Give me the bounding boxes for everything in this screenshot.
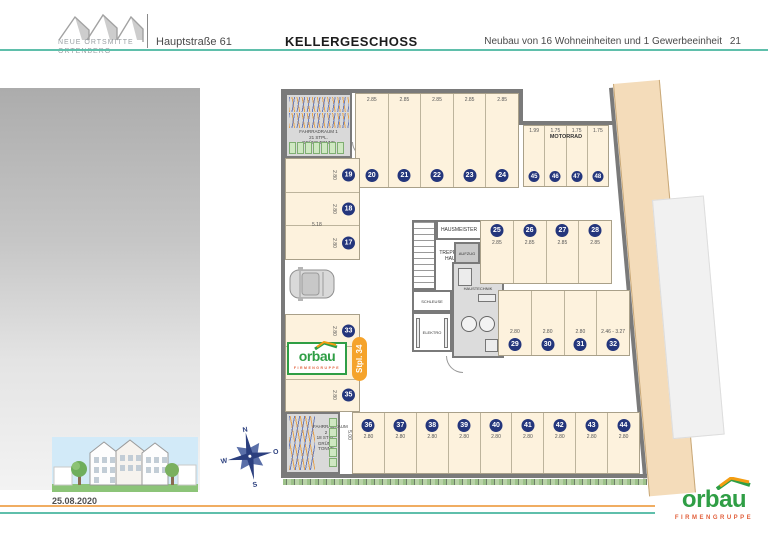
parking-number-badge: 36 [362, 419, 375, 432]
parking-number-badge: 26 [523, 224, 536, 237]
schleuse-label: SCHLEUSE [414, 299, 450, 305]
parking-number-badge: 23 [463, 169, 476, 182]
parking-stall: 28 2.85 [578, 221, 611, 283]
stall-dimension: 2.80 [331, 238, 337, 248]
parking-number-badge: 22 [430, 169, 443, 182]
parking-row-upper-middle: 25 2.85 26 2.85 27 2.85 28 2.85 [480, 220, 612, 284]
stall-dimension: 2.80 [331, 204, 337, 214]
svg-text:O: O [273, 448, 280, 456]
stall-dimension: 2.85 [432, 97, 442, 103]
parking-number-badge: 43 [585, 419, 598, 432]
parking-stall: 27 2.85 [546, 221, 579, 283]
orbau-wordmark: orbau [682, 486, 746, 513]
stall-dimension: 2.80 [459, 434, 469, 440]
parking-number-badge: 28 [589, 224, 602, 237]
stall-dimension: 2.80 [576, 329, 586, 335]
parking-number-badge: 40 [490, 419, 503, 432]
parking-number-badge: 41 [521, 419, 534, 432]
parking-number-badge: 35 [342, 389, 355, 402]
parking-stall: 2.80 17 [286, 225, 359, 259]
motorrad-label: MOTORRAD [538, 134, 594, 140]
parking-stall: 2.80 30 [531, 291, 564, 355]
parking-number-badge: 18 [342, 203, 355, 216]
car-top-view-icon [287, 265, 337, 303]
stall-dimension: 2.80 [331, 390, 337, 400]
parking-number-badge: 20 [365, 169, 378, 182]
parking-number-badge: 27 [556, 224, 569, 237]
parking-stall: 44 2.80 [607, 413, 639, 473]
stall-dimension: 2.80 [587, 434, 597, 440]
stall-dimension: 2.85 [492, 240, 502, 246]
orbau-sub-label: FIRMENGRUPPE [294, 366, 340, 370]
parking-row-lower-middle: 2.80 29 2.80 30 2.80 31 2.46 - 3.27 32 [498, 290, 630, 356]
room-fahrradraum-2: FAHRRADRAUM 2 18 STPL. GRÜNE TONNE [285, 412, 340, 474]
stall-dimension: 2.80 [364, 434, 374, 440]
svg-text:N: N [242, 426, 248, 434]
parking-stall: 2.80 18 [286, 192, 359, 226]
stall-dimension: 2.80 [395, 434, 405, 440]
parking-stall: 39 2.80 [448, 413, 480, 473]
stall-dimension: 2.80 [427, 434, 437, 440]
page-title: KELLERGESCHOSS [285, 34, 418, 49]
stall-dimension: 2.85 [400, 97, 410, 103]
header-divider [147, 14, 148, 48]
stall-dimension: 2.85 [465, 97, 475, 103]
bike-rack-icon [289, 97, 349, 112]
parking-number-badge: 39 [458, 419, 471, 432]
logo-text: NEUE ORTSMITTE ORTENBERG [58, 38, 134, 56]
parking-stall: 25 2.85 [481, 221, 513, 283]
stall-dimension: 2.80 [331, 326, 337, 336]
wall-bottom [281, 474, 647, 478]
parking-number-badge: 33 [342, 324, 355, 337]
project-address: Hauptstraße 61 [156, 36, 232, 48]
stall-dimension: 2.80 [523, 434, 533, 440]
parking-stall: 26 2.85 [513, 221, 546, 283]
parking-stall: 2.85 21 [388, 94, 421, 187]
page-number: 21 [730, 36, 741, 47]
stall-dimension: 2.85 [590, 240, 600, 246]
parking-stall: 2.80 35 [286, 379, 359, 411]
grass-strip [283, 479, 647, 485]
haustechnik-label: HAUSTECHNIK [454, 286, 502, 292]
orbau-roof-icon [314, 341, 338, 350]
elektro-label: ELEKTRO [414, 330, 450, 336]
orbau-sub-label: FIRMENGRUPPE [668, 515, 760, 521]
parking-stall: 41 2.80 [511, 413, 543, 473]
stall-dimension: 2.85 [558, 240, 568, 246]
parking-number-badge: 31 [574, 338, 587, 351]
parking-stall: 2.85 23 [453, 94, 486, 187]
footer-rule-teal [0, 512, 655, 514]
stall-dimension: 2.85 [367, 97, 377, 103]
parking-number-badge: 47 [571, 171, 582, 182]
parking-stall: 2.85 20 [356, 94, 388, 187]
parking-number-badge: 24 [496, 169, 509, 182]
parking-stall: 40 2.80 [480, 413, 512, 473]
parking-row-top: 2.85 20 2.85 21 2.85 22 2.85 23 2.85 24 [355, 93, 519, 188]
parking-stall: 36 2.80 [353, 413, 384, 473]
bike-rack-icon [289, 113, 349, 128]
aufzug-label: AUFZUG [456, 251, 478, 257]
orbau-footer-logo: orbau FIRMENGRUPPE [668, 486, 760, 521]
parking-stall: 42 2.80 [543, 413, 575, 473]
stall-34-tag: Stpl. 34 [352, 337, 367, 381]
left-gray-panel [0, 88, 200, 490]
dimension-500: 5.00 [346, 430, 352, 440]
wall-step [519, 89, 523, 125]
room-aufzug: AUFZUG [454, 242, 480, 264]
parking-stall: 2.80 29 [499, 291, 531, 355]
orbau-roof-icon [716, 477, 752, 490]
parking-number-badge: 38 [426, 419, 439, 432]
room-treppenhaus [412, 220, 436, 290]
tank-circle [461, 316, 477, 332]
header-rule [0, 49, 768, 51]
compass-rose-icon: N O S W [215, 421, 285, 492]
parking-stall: 38 2.80 [416, 413, 448, 473]
parking-number-badge: 19 [342, 169, 355, 182]
plan-sheet-page: NEUE ORTSMITTE ORTENBERG Hauptstraße 61 … [0, 0, 768, 544]
parking-number-badge: 21 [398, 169, 411, 182]
room-elektro: ELEKTRO [412, 312, 452, 352]
svg-text:S: S [252, 481, 258, 489]
room-schleuse: SCHLEUSE [412, 290, 452, 312]
stall-dimension: 1.75 [593, 128, 603, 134]
parking-number-badge: 42 [553, 419, 566, 432]
building-elevation-illustration [52, 437, 198, 492]
hausmeister-label: HAUSMEISTER [438, 227, 480, 233]
parking-number-badge: 48 [592, 171, 603, 182]
stall-dimension: 2.80 [491, 434, 501, 440]
parking-stall: 2.85 22 [420, 94, 453, 187]
stall-dimension: 2.80 [619, 434, 629, 440]
project-subtitle: Neubau von 16 Wohneinheiten und 1 Gewerb… [484, 36, 722, 47]
orbau-wordmark: orbau [299, 348, 335, 364]
parking-stall: 2.80 31 [564, 291, 597, 355]
parking-number-badge: 25 [490, 224, 503, 237]
stall-dimension: 2.46 - 3.27 [601, 329, 625, 335]
parking-number-badge: 32 [607, 338, 620, 351]
svg-text:W: W [220, 458, 228, 466]
parking-number-badge: 46 [550, 171, 561, 182]
parking-stall: 2.80 19 [286, 159, 359, 192]
parking-stall: 37 2.80 [384, 413, 416, 473]
bike-rack-icon [289, 416, 315, 470]
logo-line1: NEUE ORTSMITTE [58, 38, 134, 47]
stall-dimension: 2.80 [555, 434, 565, 440]
parking-stall: 43 2.80 [575, 413, 607, 473]
room-fahrradraum-1: FAHRRADRAUM 1 21 STPL. GRÜNE TONNE [285, 93, 352, 158]
parking-column-left: 2.80 19 2.80 18 2.80 17 [285, 158, 360, 260]
stall-dimension: 2.80 [510, 329, 520, 335]
waste-bins [289, 142, 344, 154]
room-hausmeister: HAUSMEISTER [436, 220, 482, 240]
stall-dimension: 2.85 [497, 97, 507, 103]
parking-stall: 2.85 24 [485, 94, 518, 187]
parking-row-bottom: 36 2.80 37 2.80 38 2.80 39 2.80 40 2.80 … [352, 412, 640, 474]
parking-number-badge: 29 [508, 338, 521, 351]
stall-dimension: 2.80 [331, 170, 337, 180]
dimension-518: 5.18 [312, 222, 322, 228]
parking-number-badge: 30 [541, 338, 554, 351]
parking-number-badge: 45 [529, 171, 540, 182]
door-arc [446, 356, 463, 373]
footer-rule-orange [0, 505, 655, 507]
parking-stall: 2.46 - 3.27 32 [596, 291, 629, 355]
parking-number-badge: 17 [342, 236, 355, 249]
parking-number-badge: 37 [394, 419, 407, 432]
stall-dimension: 2.85 [525, 240, 535, 246]
parking-number-badge: 44 [617, 419, 630, 432]
tank-circle [479, 316, 495, 332]
orbau-stall-ad-box: orbau FIRMENGRUPPE [287, 342, 347, 375]
waste-bins [329, 418, 337, 467]
stall-dimension: 2.80 [543, 329, 553, 335]
